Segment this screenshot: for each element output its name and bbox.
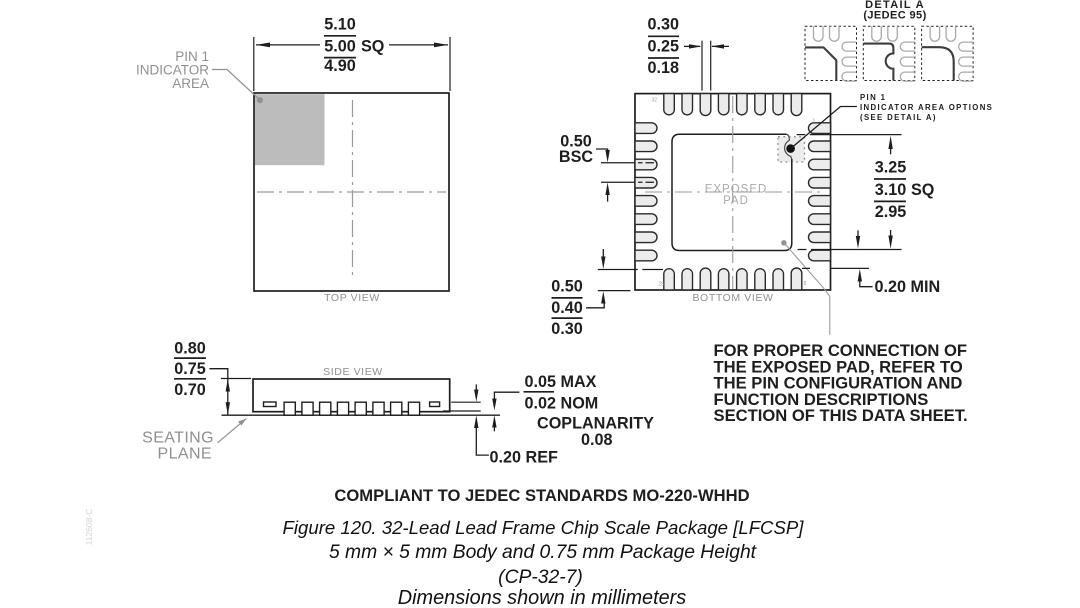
svg-text:PLANE: PLANE — [158, 446, 212, 463]
svg-text:0.70: 0.70 — [174, 381, 206, 399]
svg-text:COMPLIANT TO JEDEC STANDARDS M: COMPLIANT TO JEDEC STANDARDS MO-220-WHHD — [334, 486, 749, 505]
svg-text:0.20 REF: 0.20 REF — [490, 449, 558, 467]
svg-text:0.80: 0.80 — [174, 340, 206, 358]
svg-text:5.10: 5.10 — [324, 16, 356, 34]
svg-text:2.95: 2.95 — [875, 203, 907, 221]
svg-text:PIN 1: PIN 1 — [860, 93, 886, 102]
svg-text:SEATING: SEATING — [142, 430, 214, 447]
svg-text:0.18: 0.18 — [648, 59, 680, 77]
svg-text:(SEE DETAIL A): (SEE DETAIL A) — [860, 113, 937, 122]
svg-text:112608-C: 112608-C — [84, 509, 94, 546]
svg-text:5.00: 5.00 — [324, 37, 356, 55]
svg-text:EXPOSED: EXPOSED — [705, 183, 768, 195]
svg-text:Dimensions shown in millimeter: Dimensions shown in millimeters — [398, 587, 687, 608]
svg-text:0.08: 0.08 — [581, 431, 613, 449]
svg-text:SECTION OF THIS DATA SHEET.: SECTION OF THIS DATA SHEET. — [714, 406, 968, 425]
svg-text:SIDE VIEW: SIDE VIEW — [323, 366, 383, 378]
svg-text:5 mm × 5 mm Body and 0.75 mm P: 5 mm × 5 mm Body and 0.75 mm Package Hei… — [329, 542, 758, 563]
svg-text:(JEDEC 95): (JEDEC 95) — [863, 10, 926, 22]
svg-text:AREA: AREA — [172, 76, 209, 91]
svg-text:0.02 NOM: 0.02 NOM — [525, 394, 599, 412]
svg-text:3.10: 3.10 — [875, 181, 907, 199]
svg-text:INDICATOR AREA OPTIONS: INDICATOR AREA OPTIONS — [860, 103, 993, 112]
svg-text:BSC: BSC — [559, 148, 593, 166]
svg-text:0.25: 0.25 — [648, 37, 680, 55]
svg-text:0.05 MAX: 0.05 MAX — [525, 373, 597, 391]
svg-text:1: 1 — [813, 119, 816, 125]
svg-text:SQ: SQ — [911, 181, 934, 199]
svg-text:SQ: SQ — [361, 37, 384, 55]
svg-text:PAD: PAD — [723, 195, 749, 207]
svg-text:4.90: 4.90 — [324, 57, 356, 75]
svg-text:0.50: 0.50 — [551, 278, 583, 296]
svg-text:0.30: 0.30 — [551, 320, 583, 338]
svg-text:0.30: 0.30 — [648, 16, 680, 34]
svg-text:3.25: 3.25 — [875, 159, 907, 177]
svg-text:COPLANARITY: COPLANARITY — [537, 415, 654, 433]
svg-text:0.75: 0.75 — [174, 360, 206, 378]
svg-text:Figure 120. 32-Lead Lead Frame: Figure 120. 32-Lead Lead Frame Chip Scal… — [283, 517, 805, 538]
svg-text:8: 8 — [804, 281, 807, 287]
svg-text:25: 25 — [658, 282, 664, 288]
svg-text:32: 32 — [651, 98, 657, 104]
svg-text:0.40: 0.40 — [551, 299, 583, 317]
svg-text:(CP-32-7): (CP-32-7) — [498, 567, 583, 588]
svg-text:0.20 MIN: 0.20 MIN — [875, 278, 941, 296]
svg-text:TOP VIEW: TOP VIEW — [324, 292, 380, 304]
svg-text:BOTTOM VIEW: BOTTOM VIEW — [692, 292, 773, 304]
